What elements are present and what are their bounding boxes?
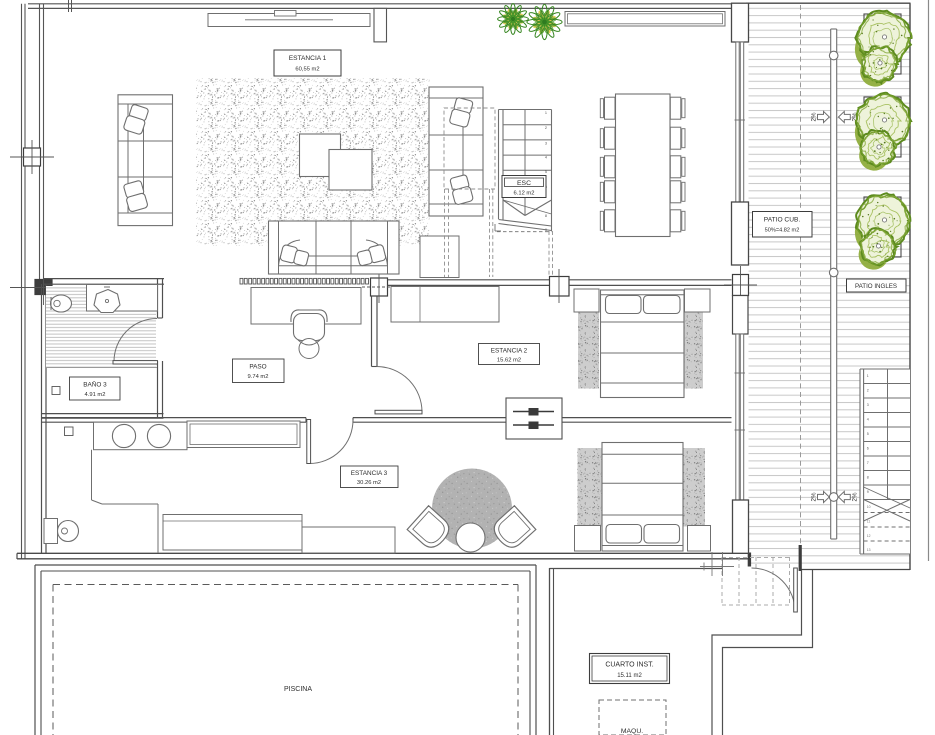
svg-text:ESTANCIA 3: ESTANCIA 3 <box>351 470 388 477</box>
svg-text:9.74 m2: 9.74 m2 <box>248 374 269 380</box>
svg-text:8: 8 <box>867 475 869 479</box>
svg-text:CUARTO INST.: CUARTO INST. <box>605 662 653 669</box>
svg-text:PASO: PASO <box>249 364 266 371</box>
svg-text:2: 2 <box>867 388 869 392</box>
svg-text:5: 5 <box>867 432 869 436</box>
svg-text:9: 9 <box>867 490 869 494</box>
svg-text:6: 6 <box>867 446 869 450</box>
svg-text:10: 10 <box>867 505 871 509</box>
svg-text:5: 5 <box>545 170 547 174</box>
svg-text:2%: 2% <box>852 492 859 501</box>
svg-text:1: 1 <box>545 111 547 115</box>
svg-text:4: 4 <box>867 417 869 421</box>
svg-text:60,55 m2: 60,55 m2 <box>295 67 319 73</box>
svg-text:4.91 m2: 4.91 m2 <box>85 392 106 398</box>
svg-text:12: 12 <box>867 534 871 538</box>
svg-text:ESTANCIA 1: ESTANCIA 1 <box>289 55 327 62</box>
svg-text:15.62 m2: 15.62 m2 <box>497 358 521 364</box>
svg-text:6.12 m2: 6.12 m2 <box>514 191 535 197</box>
svg-text:2%: 2% <box>811 112 818 121</box>
svg-text:ESC: ESC <box>517 180 531 187</box>
svg-text:3: 3 <box>867 403 869 407</box>
svg-text:BAÑO 3: BAÑO 3 <box>83 380 107 389</box>
svg-text:9: 9 <box>545 228 547 232</box>
svg-text:15.11 m2: 15.11 m2 <box>617 673 642 679</box>
svg-text:PATIO CUB.: PATIO CUB. <box>764 217 801 224</box>
svg-text:30.26 m2: 30.26 m2 <box>357 480 381 486</box>
svg-text:13: 13 <box>867 548 871 552</box>
svg-text:1: 1 <box>867 374 869 378</box>
svg-text:11: 11 <box>867 520 871 524</box>
svg-text:PATIO INGLES: PATIO INGLES <box>855 283 897 290</box>
svg-text:3: 3 <box>545 142 547 146</box>
svg-text:2: 2 <box>545 126 547 130</box>
svg-text:PISCINA: PISCINA <box>284 686 312 693</box>
svg-text:4: 4 <box>545 156 547 160</box>
svg-text:2%: 2% <box>811 492 818 501</box>
svg-text:7: 7 <box>867 461 869 465</box>
svg-text:MAQU.: MAQU. <box>621 728 643 735</box>
svg-text:50%=4.82 m2: 50%=4.82 m2 <box>765 228 800 234</box>
svg-text:ESTANCIA 2: ESTANCIA 2 <box>491 348 528 355</box>
svg-text:8: 8 <box>545 214 547 218</box>
